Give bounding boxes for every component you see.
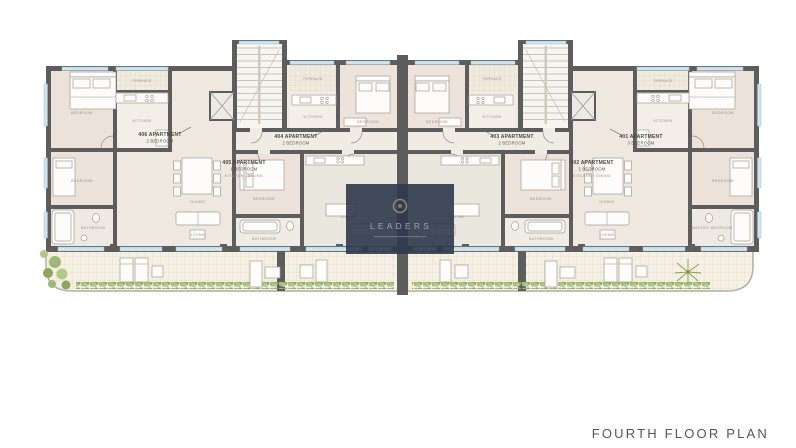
svg-text:3 BEDROOM: 3 BEDROOM: [628, 141, 655, 146]
room-label: LIVING: [191, 233, 205, 237]
room-label: BEDROOM: [712, 179, 734, 183]
watermark: LEADERS: [346, 184, 454, 254]
room-label: LIVING: [600, 233, 614, 237]
hedge-row-right: [412, 282, 710, 289]
room-label: TERRACE: [653, 79, 673, 83]
svg-text:406 APARTMENT: 406 APARTMENT: [138, 132, 181, 138]
room-label: BEDROOM: [253, 197, 275, 201]
drawing-title: FOURTH FLOOR PLAN: [592, 426, 769, 441]
room-label-kitchen-dining-402: KITCHEN / DINING: [573, 174, 612, 178]
room-label: TERRACE: [132, 79, 152, 83]
svg-text:2 BEDROOM: 2 BEDROOM: [147, 139, 174, 144]
room-label: BATHROOM: [81, 226, 105, 230]
room-label: TERRACE: [303, 77, 323, 81]
room-label: DINING: [190, 200, 205, 204]
room-label: BEDROOM: [71, 111, 93, 115]
room-label: KITCHEN: [304, 115, 323, 119]
svg-text:405 APARTMENT: 405 APARTMENT: [222, 160, 265, 166]
room-label: BEDROOM: [357, 120, 379, 124]
svg-text:401 APARTMENT: 401 APARTMENT: [619, 134, 662, 140]
room-label: BATHROOM: [252, 237, 276, 241]
svg-text:2 BEDROOM: 2 BEDROOM: [499, 141, 526, 146]
room-label: MASTER BEDROOM: [692, 226, 733, 230]
room-label: KITCHEN: [483, 115, 502, 119]
room-label: BEDROOM: [530, 197, 552, 201]
floor-plan-page: 406 APARTMENT 2 BEDROOM 404 APARTMENT 2 …: [0, 0, 796, 448]
svg-text:2 BEDROOM: 2 BEDROOM: [283, 141, 310, 146]
watermark-panel: [346, 184, 454, 254]
room-label: BEDROOM: [71, 179, 93, 183]
svg-text:404 APARTMENT: 404 APARTMENT: [274, 134, 317, 140]
svg-text:1 BEDROOM: 1 BEDROOM: [579, 167, 606, 172]
room-label: BEDROOM: [426, 120, 448, 124]
room-label: BEDROOM: [712, 111, 734, 115]
watermark-brand: LEADERS: [370, 221, 432, 231]
svg-text:1 BEDROOM: 1 BEDROOM: [231, 167, 258, 172]
room-label: KITCHEN: [654, 119, 673, 123]
floor-plan-drawing: 406 APARTMENT 2 BEDROOM 404 APARTMENT 2 …: [0, 0, 796, 448]
svg-text:402 APARTMENT: 402 APARTMENT: [570, 160, 613, 166]
room-label: DINING: [599, 200, 614, 204]
room-label-kitchen-dining-405: KITCHEN / DINING: [225, 174, 264, 178]
watermark-tagline-rule: [374, 236, 426, 237]
hedge-row-left: [76, 282, 394, 289]
svg-text:403 APARTMENT: 403 APARTMENT: [490, 134, 533, 140]
room-label: BATHROOM: [529, 237, 553, 241]
room-label: KITCHEN: [133, 119, 152, 123]
room-label: TERRACE: [482, 77, 502, 81]
